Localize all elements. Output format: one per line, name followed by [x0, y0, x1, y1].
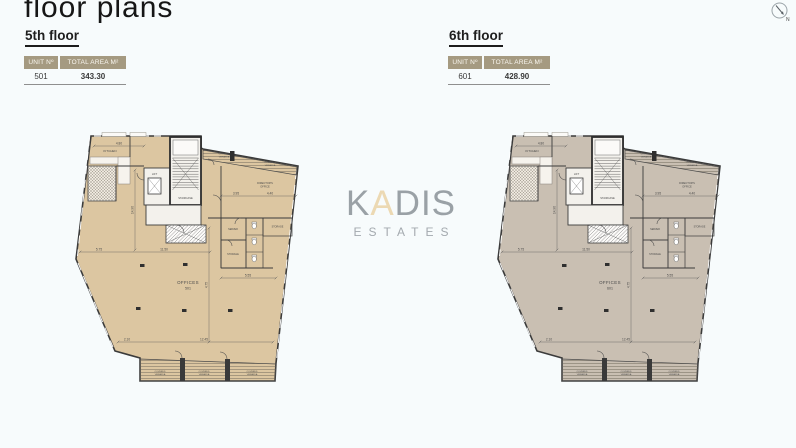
brand-subtitle: ESTATES [338, 225, 464, 239]
dimension-label: 4.75 [205, 282, 209, 288]
room-label: KITCHEN [525, 149, 538, 153]
unit-table-header: UNIT Nº TOTAL AREA M² [448, 56, 550, 69]
svg-text:N: N [786, 17, 790, 23]
dimension-label: 4.80 [116, 142, 122, 146]
offices-label: OFFICES [177, 280, 199, 285]
dimension-label: 4.80 [538, 142, 544, 146]
unit-table-6th: UNIT Nº TOTAL AREA M² 601 428.90 [448, 56, 550, 85]
unit-number-value: 501 [24, 72, 58, 81]
room-label: STORAGE [649, 253, 661, 256]
room-label: VERANDA [265, 164, 276, 167]
room-label: VERANDA [247, 373, 258, 376]
offices-label: OFFICES [599, 280, 621, 285]
total-area-value: 343.30 [60, 72, 126, 81]
room-label: LIFT [574, 172, 580, 176]
room-label: VERANDA [155, 373, 166, 376]
total-area-value: 428.90 [484, 72, 550, 81]
dimension-label: 12.45 [200, 338, 208, 342]
unit-number-value: 601 [448, 72, 482, 81]
dimension-label: 5.55 [245, 274, 251, 278]
floor-plan-5th: 5.7511.502.1012.454.753.954.405.554.8014… [58, 128, 330, 430]
room-label: OFFICE [260, 185, 270, 189]
room-label: OFFICE [682, 185, 692, 189]
room-label: VERANDA [687, 164, 698, 167]
room-label: DIRECTOR'S [257, 181, 273, 185]
dimension-label: 3.95 [655, 192, 661, 196]
unit-table-row: 501 343.30 [24, 69, 126, 85]
room-label: STORAGE [694, 226, 706, 229]
dimension-label: 5.55 [667, 274, 673, 278]
room-label: COVERED [265, 162, 276, 164]
dimension-label: 4.40 [689, 192, 695, 196]
dimension-label: 2.10 [546, 338, 552, 342]
room-label: STAIRCASE [600, 196, 615, 200]
room-label: VERANDA [641, 156, 652, 159]
brand-watermark: KADIS ESTATES [338, 186, 464, 239]
unit-table-5th: UNIT Nº TOTAL AREA M² 501 343.30 [24, 56, 126, 85]
room-label: COVERED [621, 371, 632, 373]
dimension-label: 5.75 [96, 248, 102, 252]
room-label: SERVER [228, 228, 238, 231]
room-label: VERANDA [669, 373, 680, 376]
room-label: VERANDA [199, 373, 210, 376]
floor-heading-5th: 5th floor [25, 28, 79, 47]
page: floor plans 5th floor 6th floor UNIT Nº … [0, 0, 796, 448]
room-label: STORAGE [272, 226, 284, 229]
dimension-label: 14.90 [553, 206, 557, 214]
room-label: COVERED [687, 162, 698, 164]
total-area-header: TOTAL AREA M² [60, 56, 126, 69]
dimension-label: 11.50 [582, 248, 590, 252]
floor-plan-6th: 5.7511.502.1012.454.753.954.405.554.8014… [480, 128, 752, 430]
room-label: VERANDA [219, 156, 230, 159]
offices-number: 501 [185, 287, 191, 291]
floor-heading-6th: 6th floor [449, 28, 503, 47]
dimension-label: 11.50 [160, 248, 168, 252]
dimension-label: 4.75 [627, 282, 631, 288]
dimension-label: 14.90 [131, 206, 135, 214]
room-label: COVERED [577, 371, 588, 373]
room-label: COVERED [641, 154, 652, 156]
room-label: STAIRCASE [178, 196, 193, 200]
unit-table-header: UNIT Nº TOTAL AREA M² [24, 56, 126, 69]
room-label: VERANDA [621, 373, 632, 376]
room-label: LIFT [152, 172, 158, 176]
brand-name: KADIS [338, 186, 464, 221]
page-title: floor plans [24, 0, 173, 25]
room-label: DIRECTOR'S [679, 181, 695, 185]
dimension-label: 3.95 [233, 192, 239, 196]
room-label: COVERED [247, 371, 258, 373]
room-label: COVERED [669, 371, 680, 373]
room-label: VERANDA [577, 373, 588, 376]
unit-table-row: 601 428.90 [448, 69, 550, 85]
unit-number-header: UNIT Nº [448, 56, 482, 69]
unit-number-header: UNIT Nº [24, 56, 58, 69]
room-label: STORAGE [227, 253, 239, 256]
dimension-label: 2.10 [124, 338, 130, 342]
dimension-label: 5.75 [518, 248, 524, 252]
total-area-header: TOTAL AREA M² [484, 56, 550, 69]
room-label: COVERED [155, 371, 166, 373]
brand-letter-a: A [370, 184, 394, 223]
room-label: KITCHEN [103, 149, 116, 153]
offices-number: 601 [607, 287, 613, 291]
floor-plan-svg-6: 5.7511.502.1012.454.753.954.405.554.8014… [480, 128, 752, 430]
north-arrow-icon: N [770, 1, 794, 29]
dimension-label: 12.45 [622, 338, 630, 342]
room-label: SERVER [650, 228, 660, 231]
room-label: COVERED [219, 154, 230, 156]
room-label: COVERED [199, 371, 210, 373]
floor-plan-svg-5: 5.7511.502.1012.454.753.954.405.554.8014… [58, 128, 330, 430]
dimension-label: 4.40 [267, 192, 273, 196]
